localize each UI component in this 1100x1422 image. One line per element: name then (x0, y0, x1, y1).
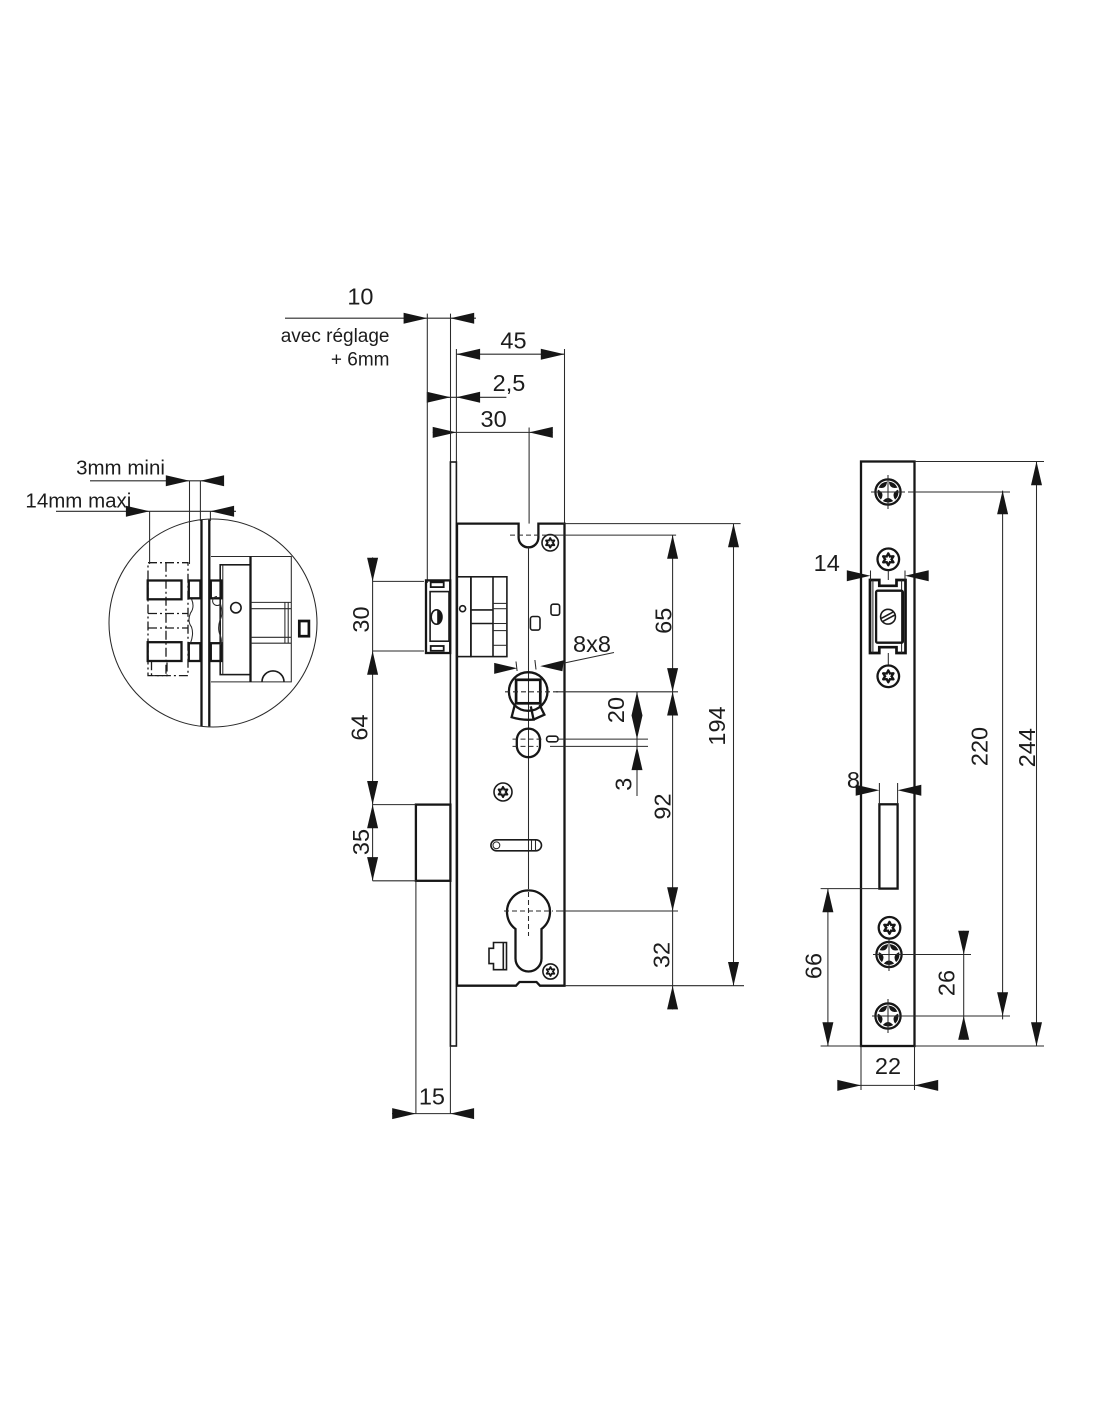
svg-text:3: 3 (611, 778, 637, 791)
svg-text:66: 66 (800, 953, 826, 979)
svg-text:20: 20 (603, 697, 629, 723)
svg-text:35: 35 (348, 829, 374, 855)
svg-text:10: 10 (347, 283, 373, 309)
svg-text:244: 244 (1014, 728, 1040, 767)
svg-text:8x8: 8x8 (573, 631, 611, 657)
svg-text:22: 22 (875, 1053, 901, 1079)
svg-text:194: 194 (704, 706, 730, 745)
svg-text:220: 220 (967, 727, 993, 766)
svg-text:65: 65 (651, 608, 677, 634)
svg-text:32: 32 (649, 942, 675, 968)
svg-text:45: 45 (500, 327, 526, 353)
svg-text:2,5: 2,5 (493, 370, 526, 396)
svg-text:+ 6mm: + 6mm (331, 350, 390, 371)
svg-text:14: 14 (814, 550, 840, 576)
svg-text:26: 26 (934, 970, 960, 996)
svg-text:92: 92 (650, 793, 676, 819)
svg-text:3mm mini: 3mm mini (76, 457, 165, 480)
svg-text:30: 30 (348, 606, 374, 632)
svg-text:14mm maxi: 14mm maxi (25, 490, 131, 513)
svg-text:30: 30 (481, 406, 507, 432)
svg-text:15: 15 (419, 1083, 445, 1109)
svg-text:64: 64 (347, 714, 373, 740)
svg-text:avec réglage: avec réglage (281, 326, 390, 347)
